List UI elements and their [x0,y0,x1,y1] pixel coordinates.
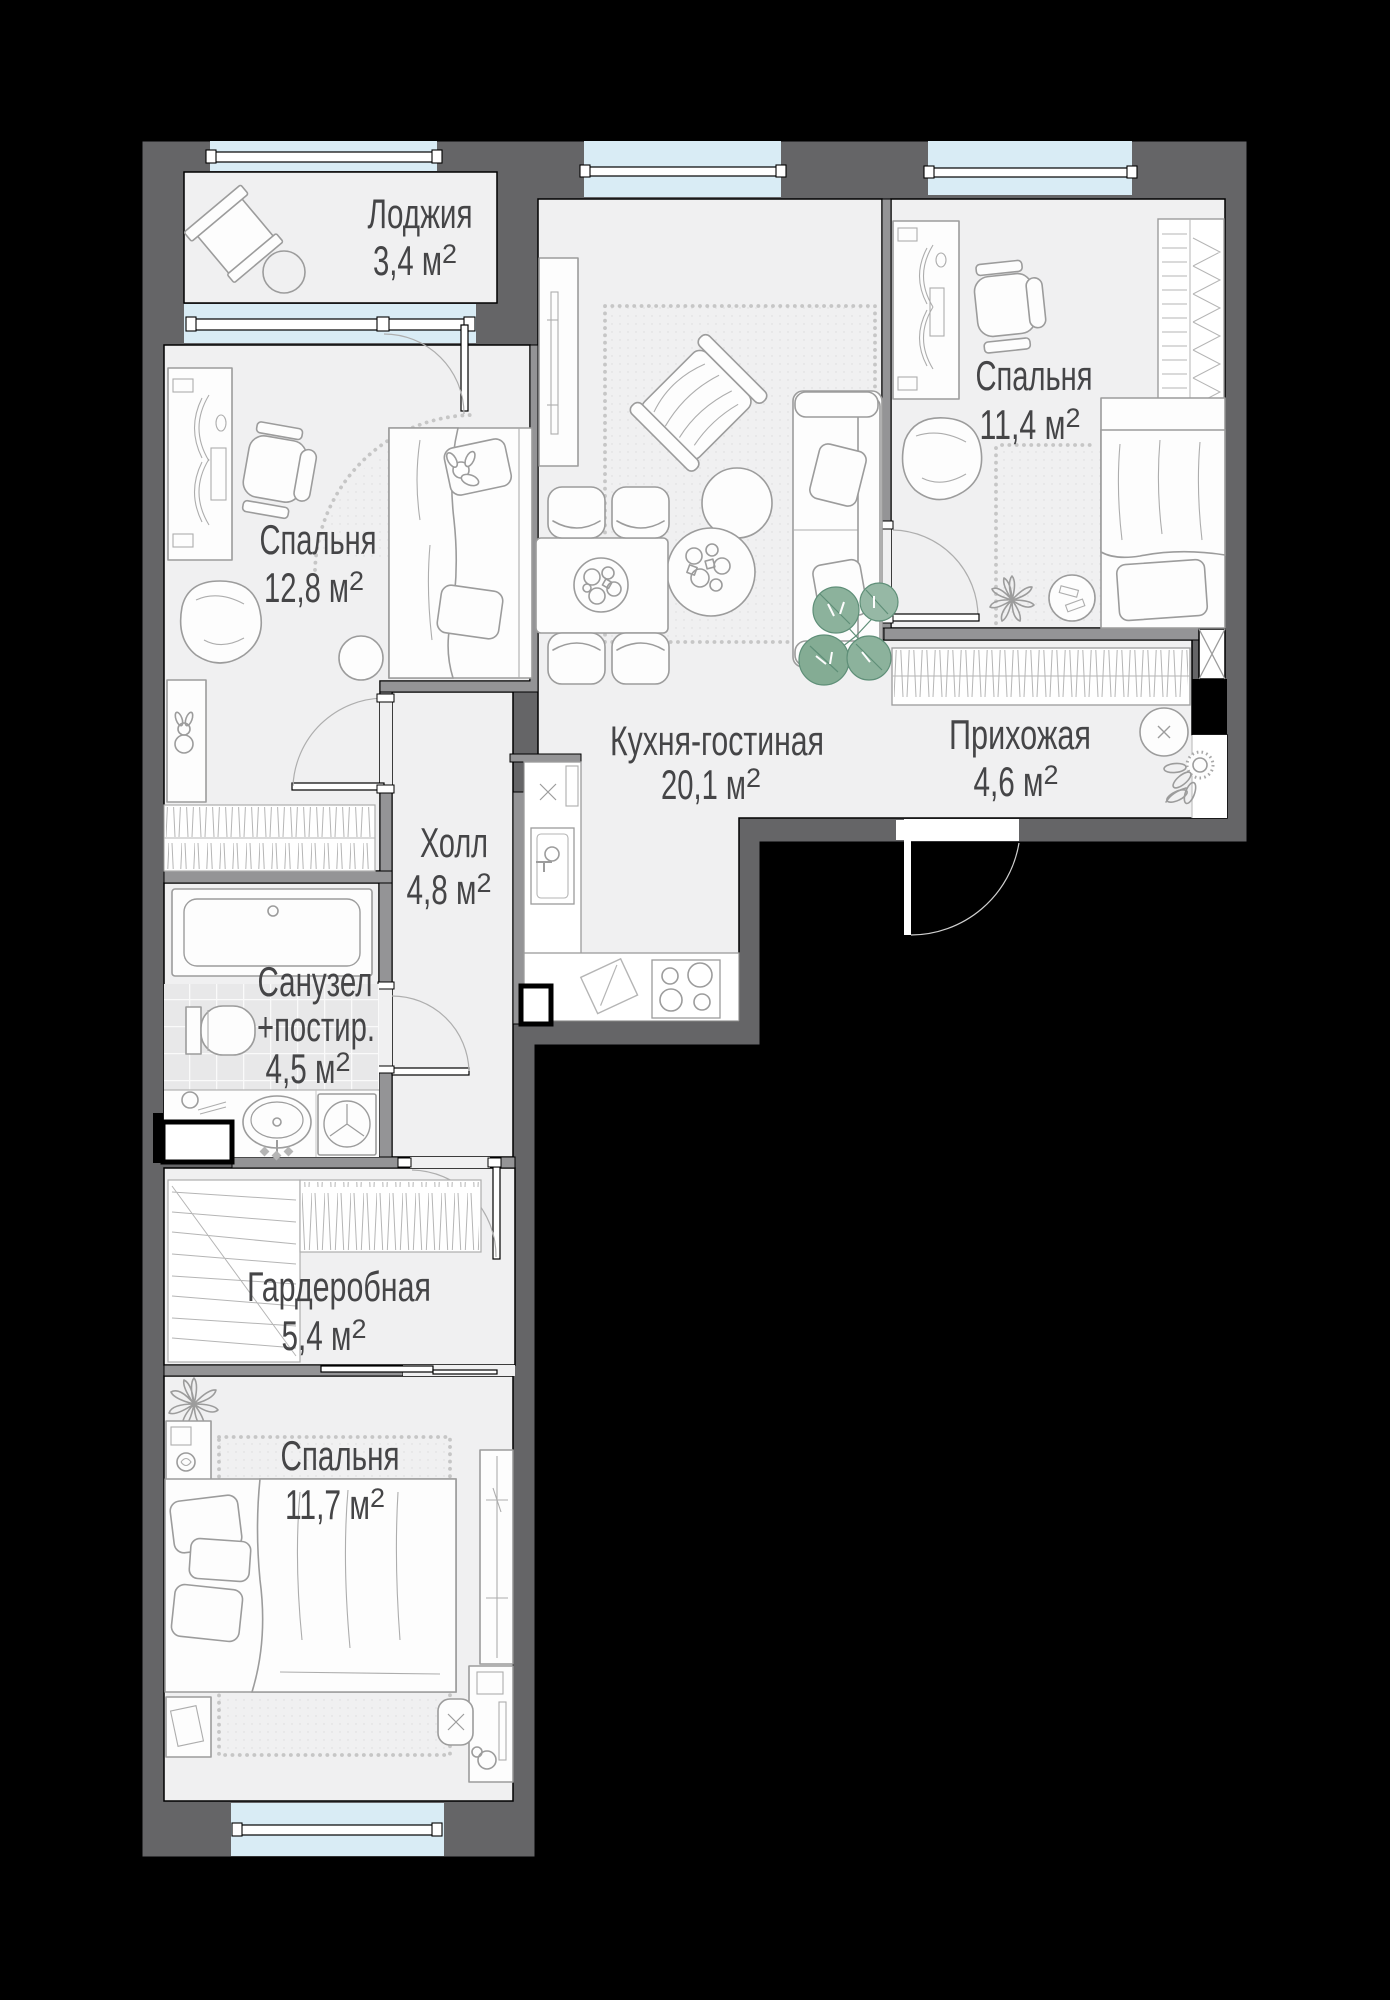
svg-text:Спальня: Спальня [976,352,1093,399]
svg-text:Кухня-гостиная: Кухня-гостиная [610,717,824,764]
svg-text:Спальня: Спальня [260,516,377,563]
svg-text:Гардеробная: Гардеробная [247,1263,431,1310]
svg-text:Прихожая: Прихожая [949,711,1091,758]
svg-text:Санузел: Санузел [258,958,373,1005]
svg-text:11,4 м2: 11,4 м2 [979,401,1080,448]
svg-text:Спальня: Спальня [281,1432,400,1479]
svg-text:Холл: Холл [420,819,488,866]
svg-text:+постир.: +постир. [257,1003,375,1050]
svg-text:Лоджия: Лоджия [368,190,473,237]
